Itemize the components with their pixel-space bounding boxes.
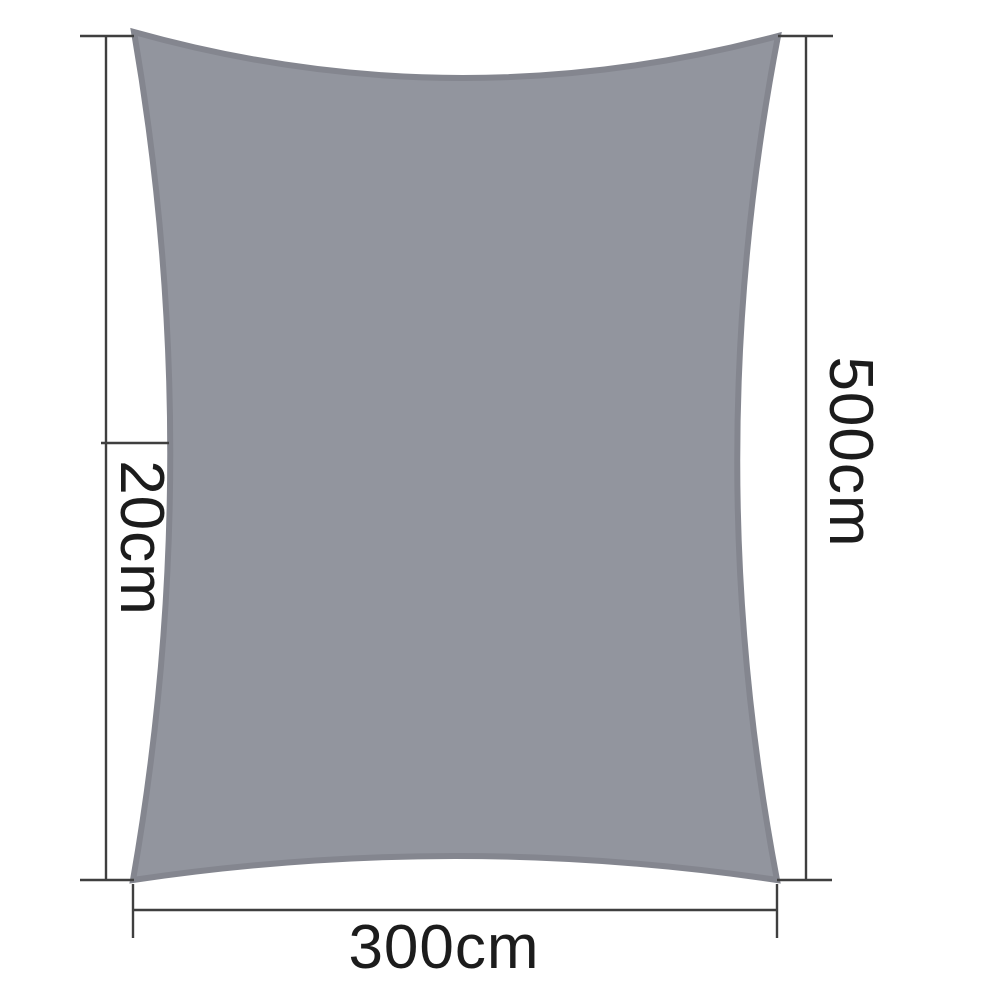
sail-dimension-diagram: 20cm 500cm 300cm — [0, 0, 1000, 1000]
curve-depth-label: 20cm — [110, 460, 172, 616]
shade-sail-shape — [133, 32, 778, 880]
height-label: 500cm — [819, 356, 881, 547]
width-label: 300cm — [348, 917, 539, 979]
